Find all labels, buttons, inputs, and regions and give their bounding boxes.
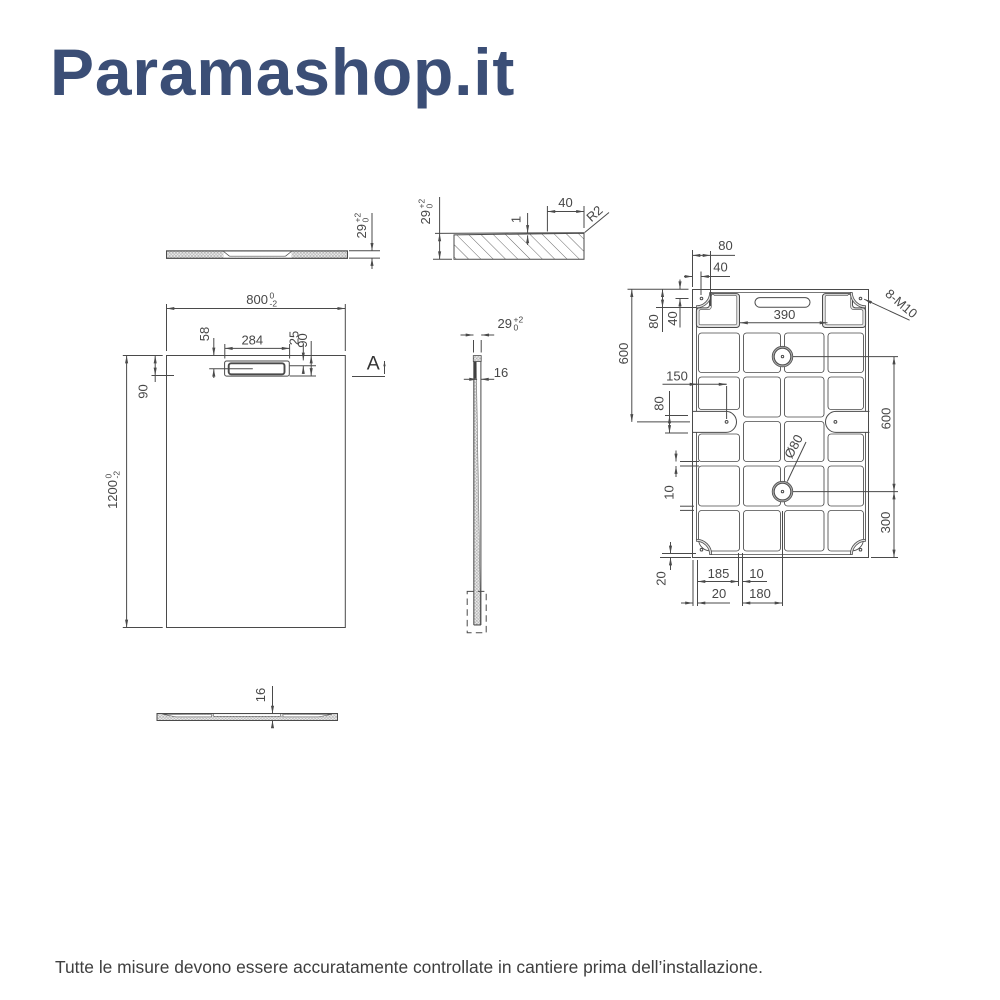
- svg-text:0: 0: [425, 204, 435, 209]
- svg-text:16: 16: [494, 365, 508, 380]
- svg-text:90: 90: [295, 333, 310, 347]
- svg-text:600: 600: [616, 343, 631, 365]
- svg-text:40: 40: [665, 311, 680, 325]
- svg-text:16: 16: [253, 688, 268, 702]
- svg-text:185: 185: [708, 566, 730, 581]
- svg-text:800: 800: [246, 292, 268, 307]
- svg-text:29: 29: [418, 210, 433, 224]
- svg-text:29: 29: [498, 316, 512, 331]
- svg-text:90: 90: [136, 384, 151, 398]
- svg-text:20: 20: [712, 586, 726, 601]
- svg-text:390: 390: [774, 307, 796, 322]
- svg-text:29: 29: [354, 224, 369, 238]
- svg-text:40: 40: [713, 260, 727, 275]
- svg-text:80: 80: [718, 238, 732, 253]
- svg-text:10: 10: [749, 566, 763, 581]
- svg-text:300: 300: [878, 512, 893, 534]
- svg-text:80: 80: [652, 396, 667, 410]
- svg-text:1: 1: [509, 216, 524, 223]
- svg-text:1200: 1200: [105, 480, 120, 509]
- svg-text:-2: -2: [270, 299, 278, 309]
- svg-text:10: 10: [662, 485, 677, 499]
- svg-text:R2: R2: [583, 203, 605, 225]
- svg-text:40: 40: [558, 195, 572, 210]
- svg-text:600: 600: [879, 408, 894, 430]
- svg-text:284: 284: [241, 333, 263, 348]
- svg-text:180: 180: [749, 586, 771, 601]
- svg-text:20: 20: [654, 571, 669, 585]
- svg-text:A: A: [367, 353, 380, 375]
- svg-text:0: 0: [514, 323, 519, 333]
- svg-text:58: 58: [197, 327, 212, 341]
- svg-text:80: 80: [646, 314, 661, 328]
- svg-text:-2: -2: [112, 471, 122, 479]
- svg-text:150: 150: [666, 369, 688, 384]
- svg-text:0: 0: [361, 218, 371, 223]
